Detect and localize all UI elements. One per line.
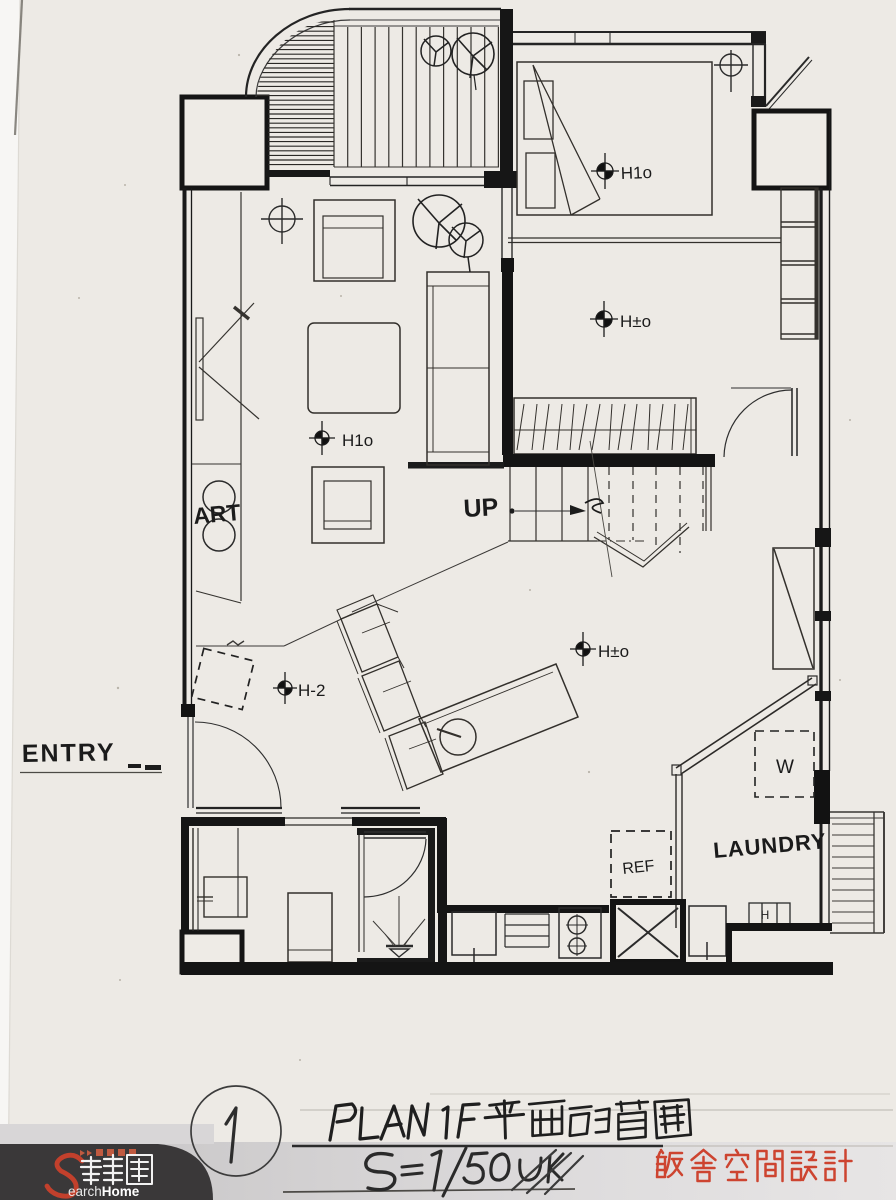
- svg-text:ART: ART: [192, 499, 241, 529]
- svg-text:ENTRY: ENTRY: [22, 738, 116, 768]
- svg-text:H±o: H±o: [620, 312, 651, 331]
- svg-text:UP: UP: [463, 493, 499, 523]
- svg-text:H-2: H-2: [298, 681, 325, 700]
- svg-text:H: H: [761, 908, 770, 922]
- svg-text:H±o: H±o: [598, 642, 629, 661]
- svg-text:earchHome: earchHome: [68, 1184, 140, 1199]
- svg-text:H1o: H1o: [620, 163, 652, 183]
- svg-text:REF: REF: [622, 858, 656, 878]
- svg-text:H1o: H1o: [342, 431, 373, 450]
- svg-text:W: W: [776, 757, 794, 778]
